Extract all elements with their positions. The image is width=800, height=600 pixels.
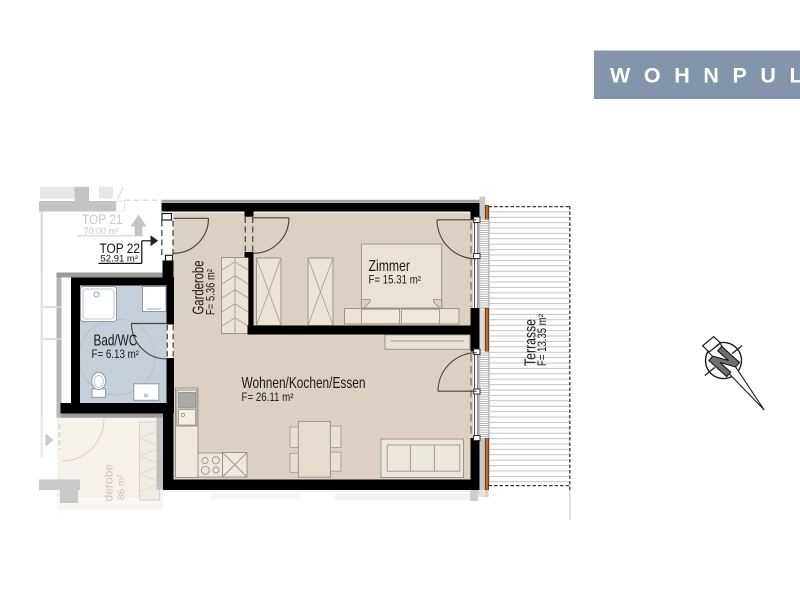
svg-text:WOHNPULS: WOHNPULS (610, 64, 800, 88)
svg-text:70.00 m²: 70.00 m² (84, 226, 120, 236)
svg-text:52.91 m²: 52.91 m² (101, 253, 139, 263)
svg-text:Zimmer: Zimmer (369, 258, 411, 275)
svg-text:Wohnen/Kochen/Essen: Wohnen/Kochen/Essen (242, 375, 366, 392)
svg-text:F= 6.13 m²: F= 6.13 m² (92, 349, 140, 361)
svg-text:F= 5.36 m²: F= 5.36 m² (206, 269, 218, 315)
svg-text:F= 13.35 m²: F= 13.35 m² (537, 314, 549, 366)
svg-text:86 m²: 86 m² (117, 474, 128, 500)
svg-text:TOP 21: TOP 21 (82, 212, 123, 227)
svg-text:derobe: derobe (102, 464, 116, 502)
svg-text:F= 15.31 m²: F= 15.31 m² (369, 275, 422, 287)
svg-text:F= 26.11 m²: F= 26.11 m² (242, 392, 294, 404)
svg-text:Bad/WC: Bad/WC (94, 333, 138, 350)
